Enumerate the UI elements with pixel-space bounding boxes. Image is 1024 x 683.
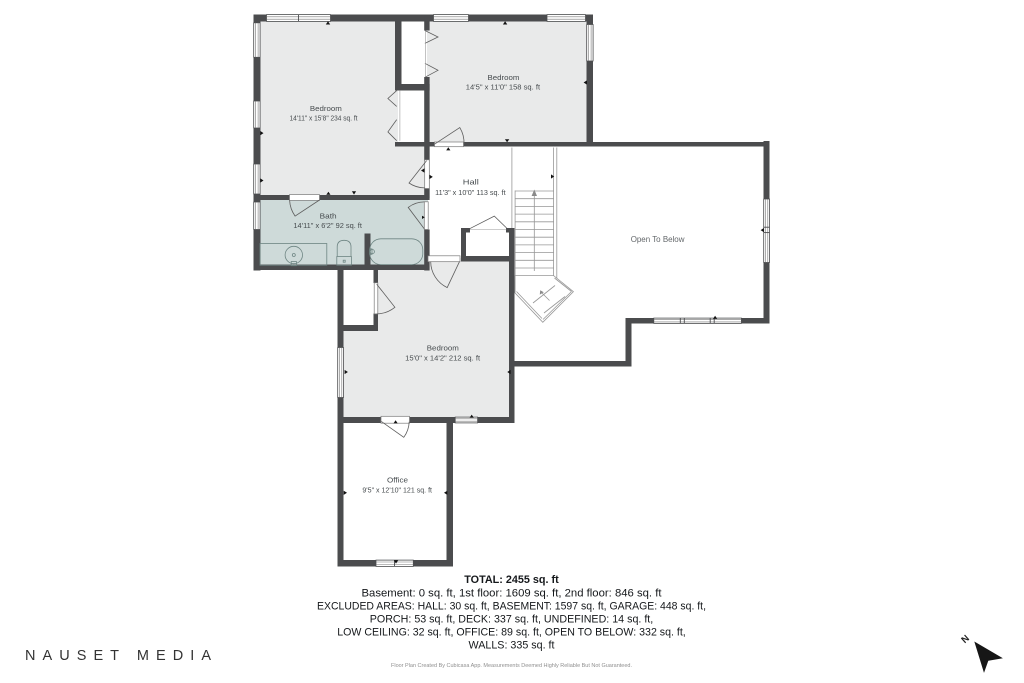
svg-text:Office: Office (387, 476, 408, 485)
svg-text:Floor Plan Created By Cubicasa: Floor Plan Created By Cubicasa App. Meas… (391, 663, 632, 669)
svg-text:LOW CEILING: 32 sq. ft, OFFICE: LOW CEILING: 32 sq. ft, OFFICE: 89 sq. f… (337, 627, 686, 639)
svg-text:9'5" x 12'10" 121 sq. ft: 9'5" x 12'10" 121 sq. ft (362, 487, 432, 495)
svg-text:14'11" x 6'2" 92 sq. ft: 14'11" x 6'2" 92 sq. ft (293, 222, 362, 230)
svg-text:EXCLUDED AREAS: HALL: 30 sq. f: EXCLUDED AREAS: HALL: 30 sq. ft, BASEMEN… (317, 601, 706, 613)
svg-text:14'5" x 11'0" 158 sq. ft: 14'5" x 11'0" 158 sq. ft (466, 84, 540, 92)
svg-text:15'0" x 14'2" 212 sq. ft: 15'0" x 14'2" 212 sq. ft (405, 354, 480, 362)
svg-text:Bath: Bath (320, 211, 337, 220)
svg-text:Bedroom: Bedroom (427, 343, 459, 352)
svg-text:Basement: 0 sq. ft, 1st floor:: Basement: 0 sq. ft, 1st floor: 1609 sq. … (362, 588, 662, 600)
svg-text:11'3" x 10'0" 113 sq. ft: 11'3" x 10'0" 113 sq. ft (435, 189, 505, 197)
svg-text:Bedroom: Bedroom (310, 104, 342, 113)
svg-text:Open To Below: Open To Below (631, 235, 685, 244)
svg-text:Hall: Hall (463, 177, 479, 186)
svg-text:PORCH: 53 sq. ft, DECK: 337 sq: PORCH: 53 sq. ft, DECK: 337 sq. ft, UNDE… (370, 614, 654, 626)
svg-text:14'11" x 15'8" 234 sq. ft: 14'11" x 15'8" 234 sq. ft (290, 115, 358, 123)
svg-text:TOTAL: 2455 sq. ft: TOTAL: 2455 sq. ft (464, 574, 559, 586)
svg-text:WALLS: 335 sq. ft: WALLS: 335 sq. ft (469, 640, 555, 652)
svg-text:Bedroom: Bedroom (488, 73, 520, 82)
